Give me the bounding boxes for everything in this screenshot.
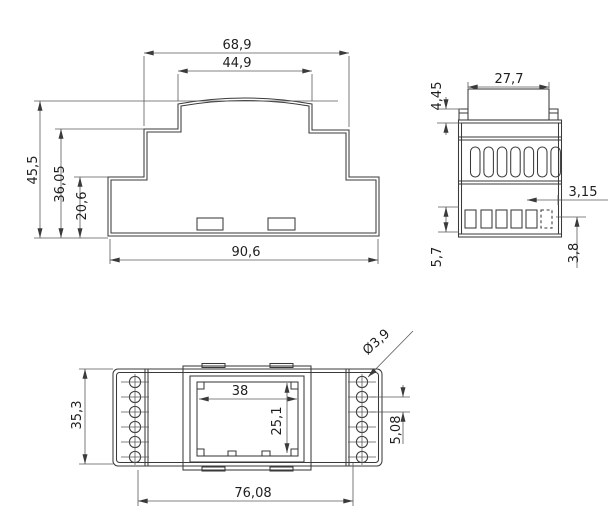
dim-top-body-depth: 35,3 bbox=[70, 401, 85, 430]
terminal-screws-right bbox=[348, 374, 376, 465]
dim-front-top-tab-width: 27,7 bbox=[495, 72, 524, 87]
dim-side-base-width: 90,6 bbox=[232, 245, 261, 260]
vent-slots bbox=[471, 147, 561, 177]
dim-side-lower-height: 20,6 bbox=[75, 192, 90, 221]
side-dimension-lines bbox=[34, 53, 378, 264]
side-profile bbox=[108, 98, 379, 236]
dim-front-terminal-bottom-offset: 3,8 bbox=[567, 243, 582, 264]
front-dimension-labels: 27,7 4,45 3,15 5,7 3,8 bbox=[430, 72, 597, 267]
dim-front-tab-height: 4,45 bbox=[430, 82, 445, 111]
dim-top-hole-diameter: Ø3,9 bbox=[360, 326, 393, 358]
front-top-tab bbox=[468, 89, 549, 120]
din-clip-slot-left bbox=[197, 218, 223, 230]
dim-front-terminal-row-height: 5,7 bbox=[430, 247, 445, 268]
dim-side-total-height: 45,5 bbox=[26, 156, 41, 185]
dim-side-top-width: 68,9 bbox=[223, 38, 252, 53]
top-dimension-labels: 38 25,1 35,3 76,08 5,08 Ø3,9 bbox=[70, 326, 404, 501]
front-profile bbox=[459, 89, 562, 237]
side-view: 68,9 44,9 90,6 45,5 36,05 20,6 bbox=[26, 38, 379, 264]
din-clip-slot-right bbox=[268, 218, 295, 230]
front-view: 27,7 4,45 3,15 5,7 3,8 bbox=[430, 72, 608, 268]
front-side-notch-right bbox=[549, 109, 558, 120]
dim-top-mounting-width: 76,08 bbox=[234, 486, 271, 501]
front-side-notch-left bbox=[459, 109, 468, 120]
dim-top-window-width: 38 bbox=[232, 384, 249, 399]
top-profile bbox=[113, 364, 382, 472]
dim-top-window-height: 25,1 bbox=[270, 407, 285, 436]
top-view: 38 25,1 35,3 76,08 5,08 Ø3,9 bbox=[70, 326, 413, 506]
dim-side-middle-height: 36,05 bbox=[53, 165, 68, 202]
dim-front-terminal-width: 3,15 bbox=[569, 185, 598, 200]
front-body bbox=[459, 120, 562, 237]
side-outline-outer bbox=[108, 98, 379, 236]
dim-side-upper-width: 44,9 bbox=[223, 56, 252, 71]
drawing-canvas: 68,9 44,9 90,6 45,5 36,05 20,6 bbox=[0, 0, 612, 523]
dim-top-hole-pitch: 5,08 bbox=[389, 416, 404, 445]
top-dimension-lines bbox=[79, 331, 413, 506]
front-dimension-lines bbox=[437, 82, 608, 268]
terminal-opening-hidden bbox=[541, 210, 552, 228]
side-outline-inner bbox=[111, 101, 376, 234]
technical-drawing: 68,9 44,9 90,6 45,5 36,05 20,6 bbox=[0, 0, 612, 523]
terminal-openings bbox=[465, 210, 552, 228]
